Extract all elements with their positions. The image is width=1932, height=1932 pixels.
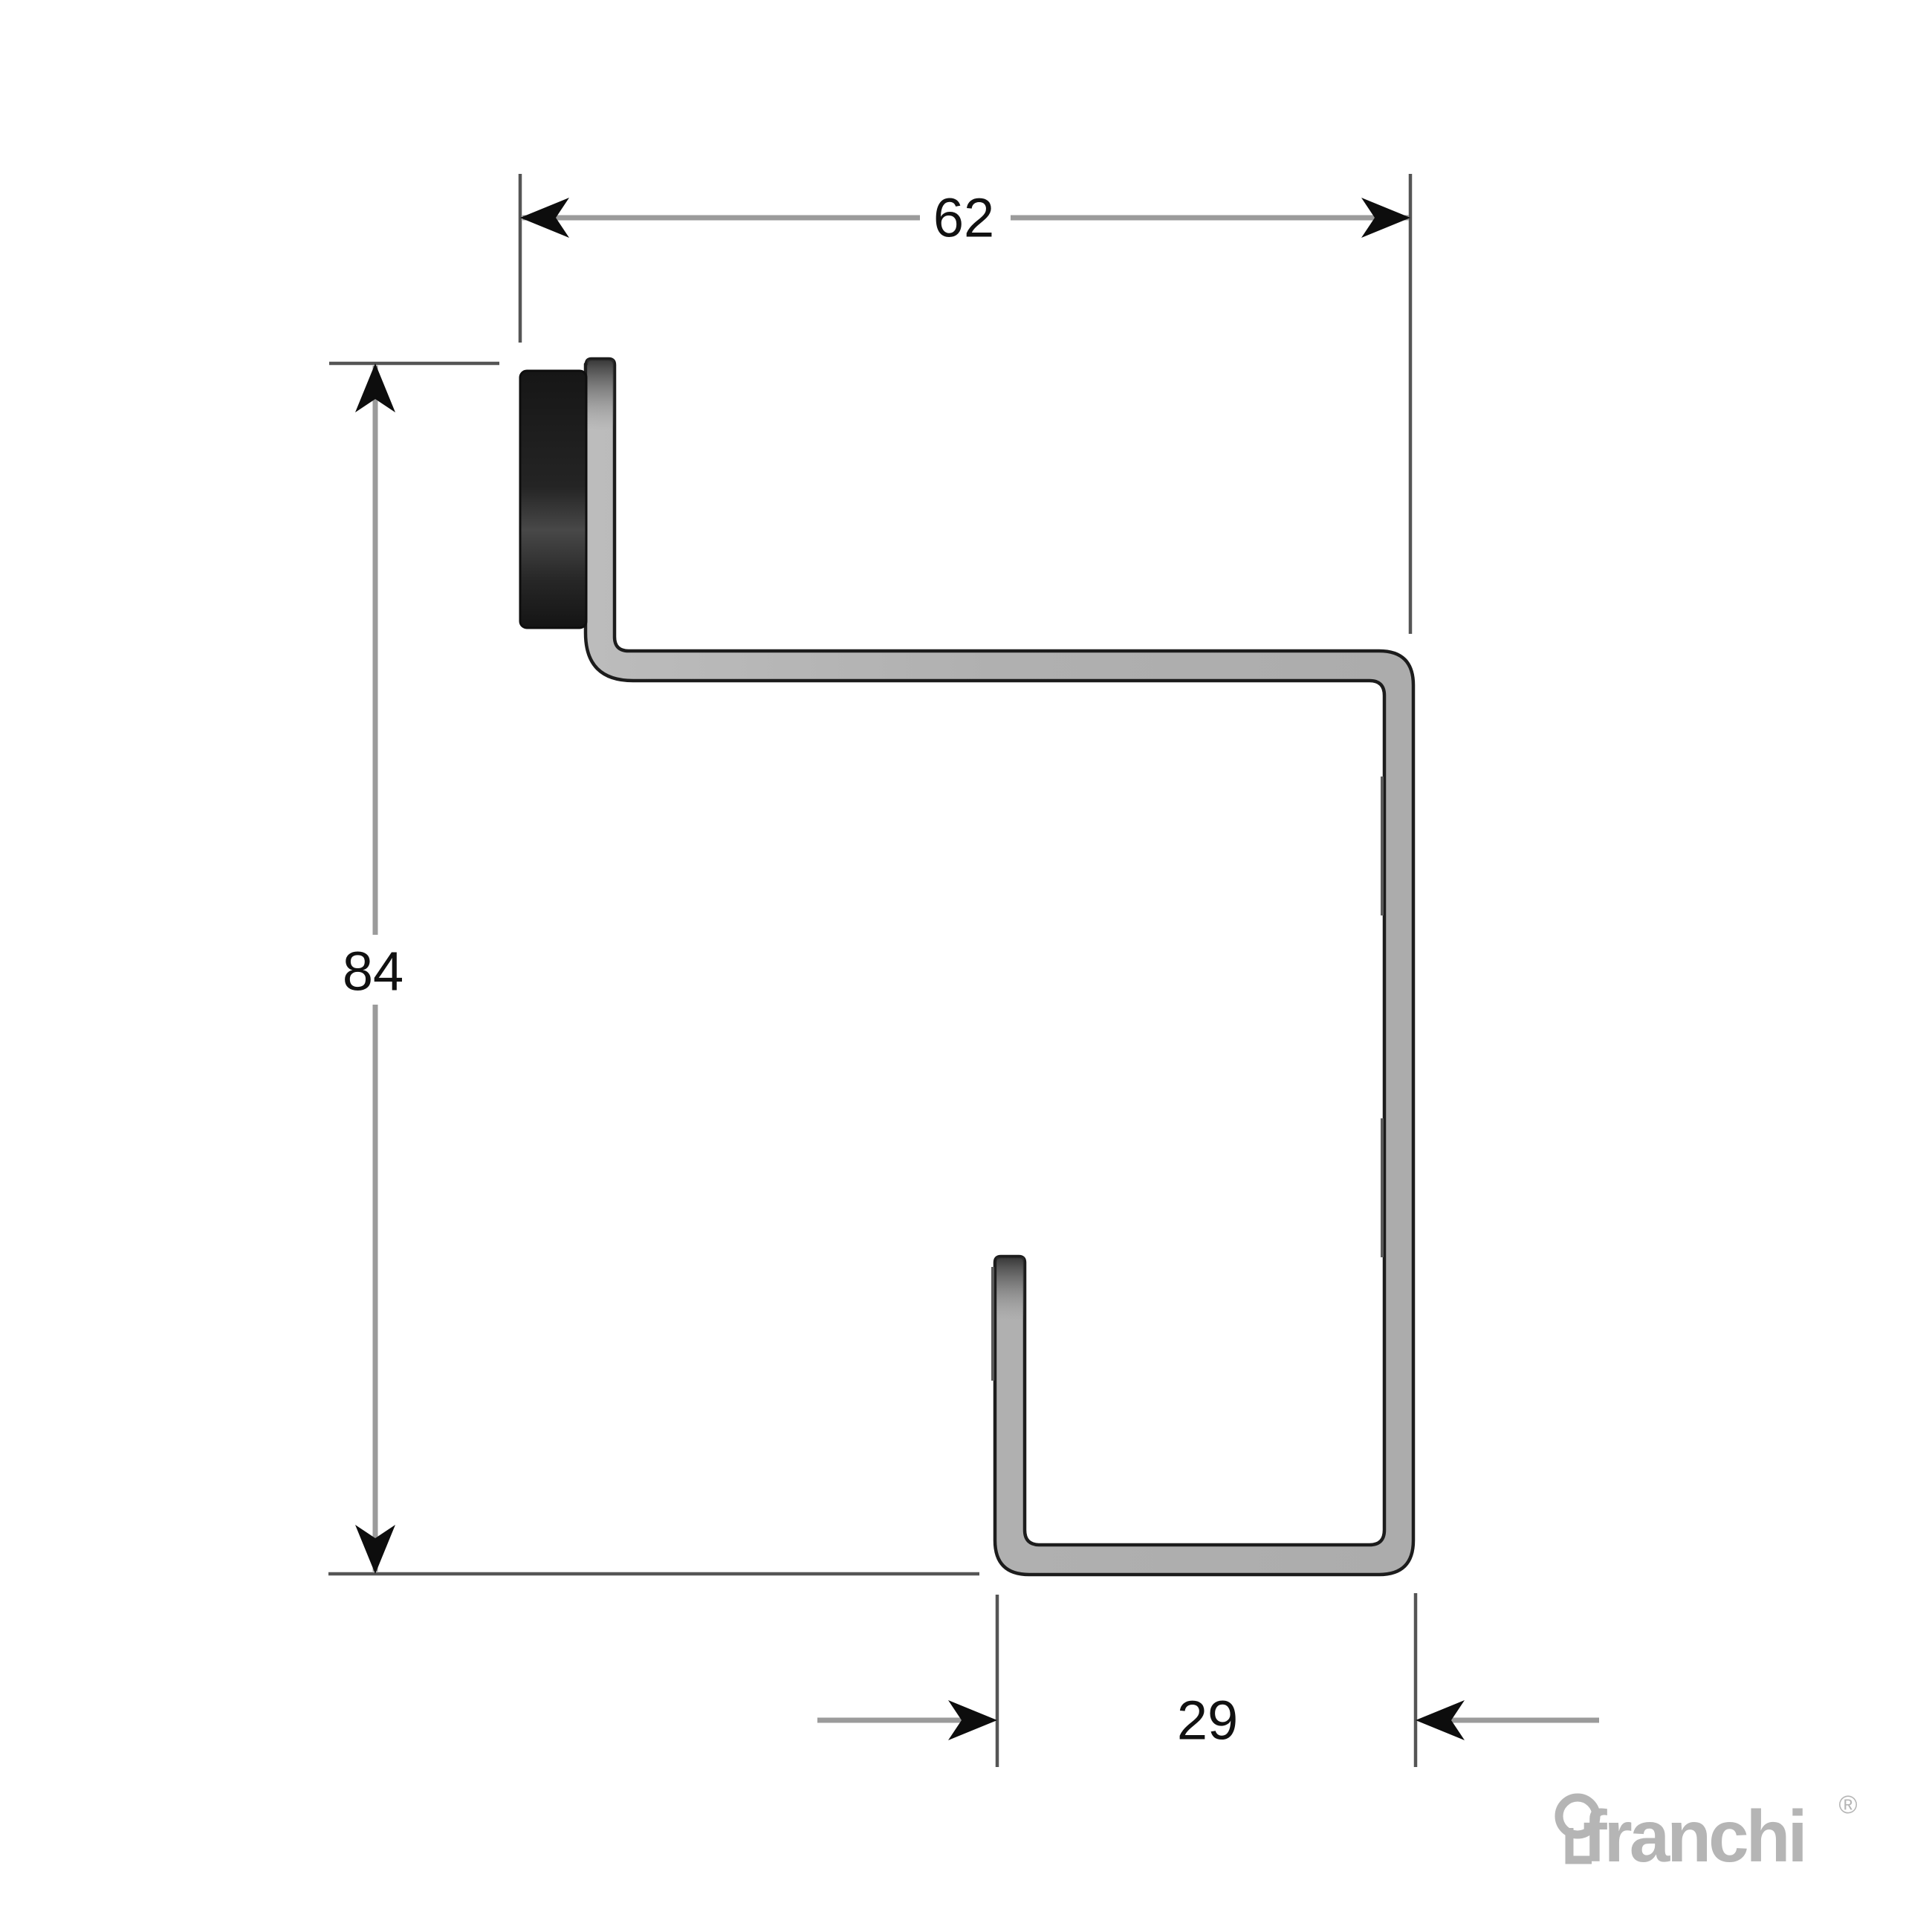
dimension-label-top-width: 62 (933, 187, 994, 249)
leg-top-shading (587, 360, 614, 430)
profile-shape (520, 359, 1413, 1575)
dimension-top-width: 62 (520, 174, 1410, 634)
dimension-left-height: 84 (328, 363, 979, 1574)
profile-drawing: 62 84 29 franchi ® (0, 0, 1932, 1932)
gasket-block (520, 371, 586, 628)
dimension-label-left-height: 84 (343, 941, 403, 1002)
franchi-logo: franchi ® (1559, 1791, 1858, 1877)
dimension-label-bottom-width: 29 (1177, 1690, 1238, 1751)
profile-steel-outline (586, 359, 1413, 1575)
logo-wordmark: franchi (1583, 1795, 1805, 1877)
dimension-bottom-width: 29 (817, 1593, 1599, 1767)
hook-top-shading (996, 1257, 1024, 1320)
drawing-canvas: 62 84 29 franchi ® (0, 0, 1932, 1932)
registered-trademark-symbol: ® (1838, 1791, 1857, 1819)
